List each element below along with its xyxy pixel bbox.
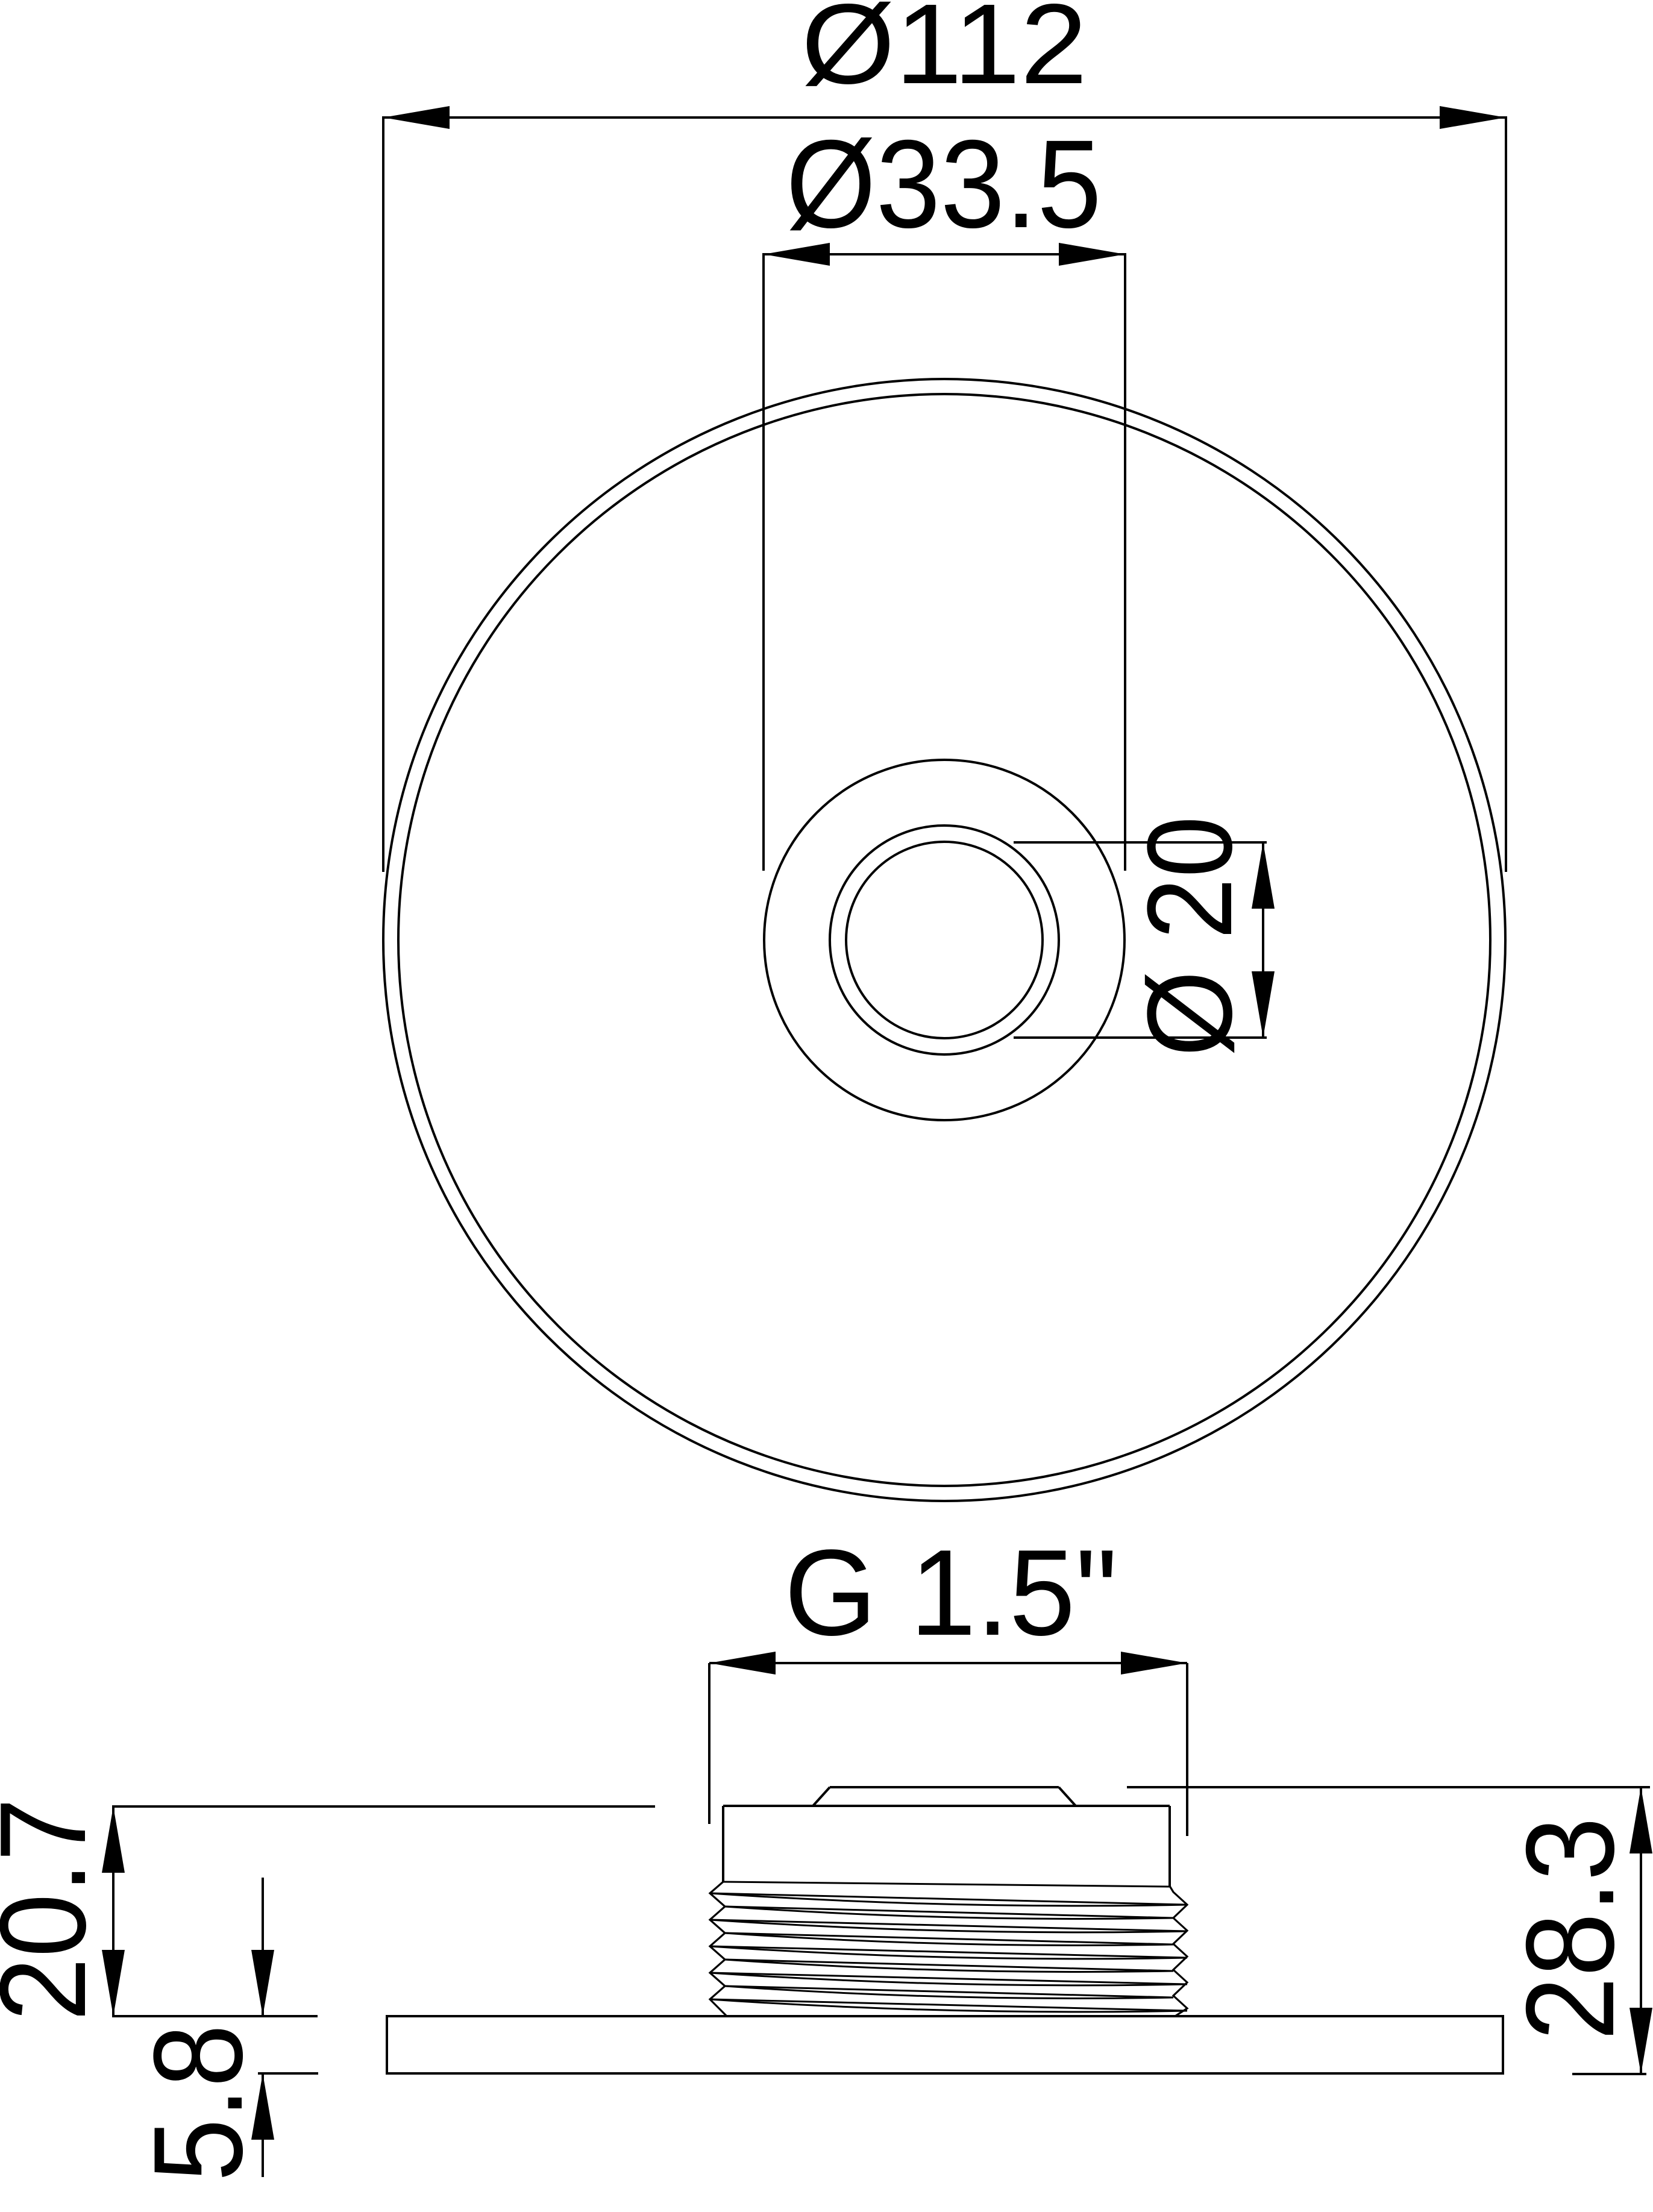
- svg-text:Ø112: Ø112: [801, 0, 1088, 108]
- svg-text:28.3: 28.3: [1501, 1817, 1640, 2041]
- svg-text:20.7: 20.7: [0, 1798, 111, 2022]
- svg-text:Ø33.5: Ø33.5: [786, 114, 1102, 254]
- svg-text:5.8: 5.8: [127, 2025, 269, 2182]
- svg-text:G 1.5": G 1.5": [785, 1524, 1118, 1661]
- svg-text:Ø 20: Ø 20: [1123, 816, 1257, 1057]
